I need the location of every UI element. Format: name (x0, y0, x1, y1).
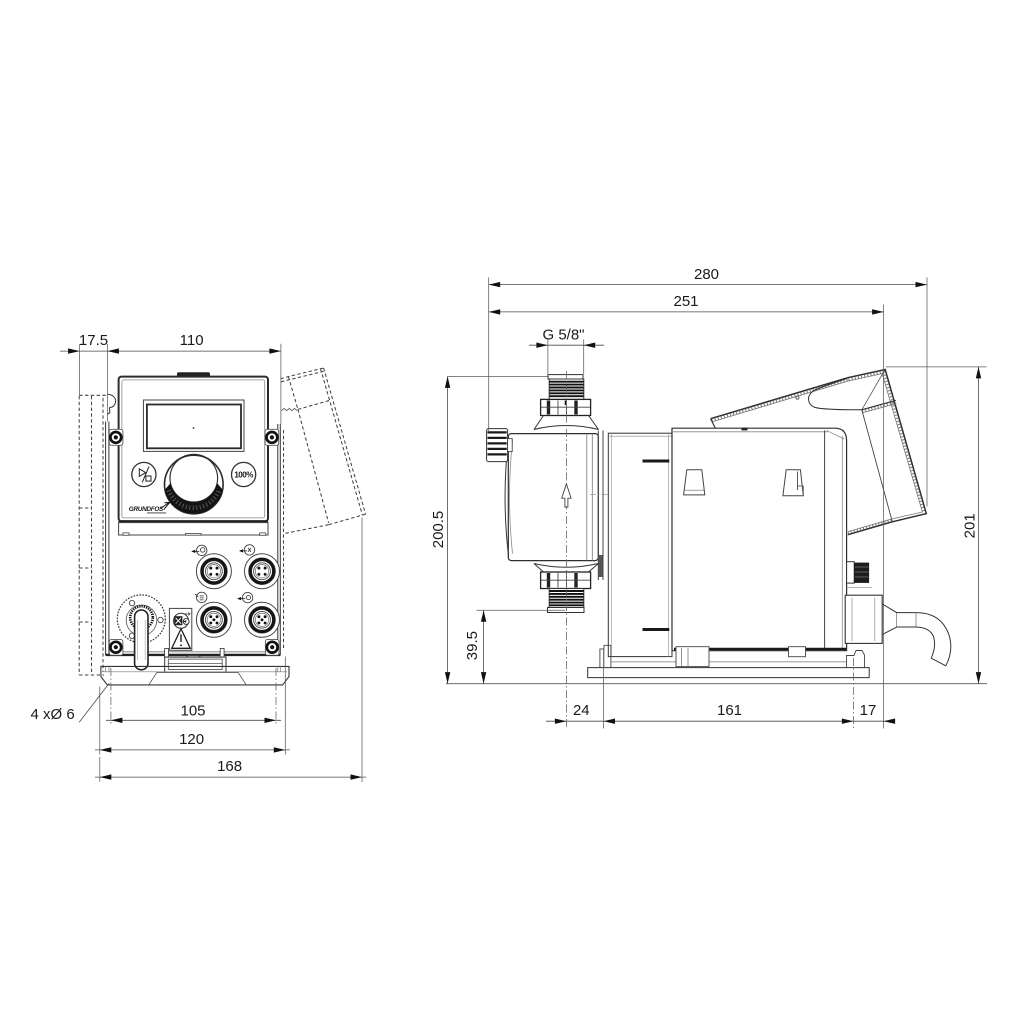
svg-text:17: 17 (860, 702, 877, 719)
svg-text:GRUNDFOS: GRUNDFOS (129, 506, 164, 513)
svg-text:120: 120 (179, 731, 204, 748)
svg-text:4 xØ 6: 4 xØ 6 (31, 706, 75, 723)
svg-text:G 5/8": G 5/8" (542, 326, 584, 343)
svg-text:251: 251 (673, 293, 698, 310)
svg-text:105: 105 (180, 702, 205, 719)
svg-text:17.5: 17.5 (79, 332, 108, 349)
svg-text:161: 161 (717, 702, 742, 719)
svg-text:280: 280 (694, 266, 719, 283)
svg-text:24: 24 (573, 702, 590, 719)
svg-text:201: 201 (961, 513, 978, 538)
svg-text:200.5: 200.5 (430, 511, 447, 549)
svg-text:100%: 100% (234, 471, 253, 480)
svg-text:168: 168 (217, 758, 242, 775)
svg-text:110: 110 (180, 332, 204, 349)
svg-text:39.5: 39.5 (464, 631, 481, 660)
